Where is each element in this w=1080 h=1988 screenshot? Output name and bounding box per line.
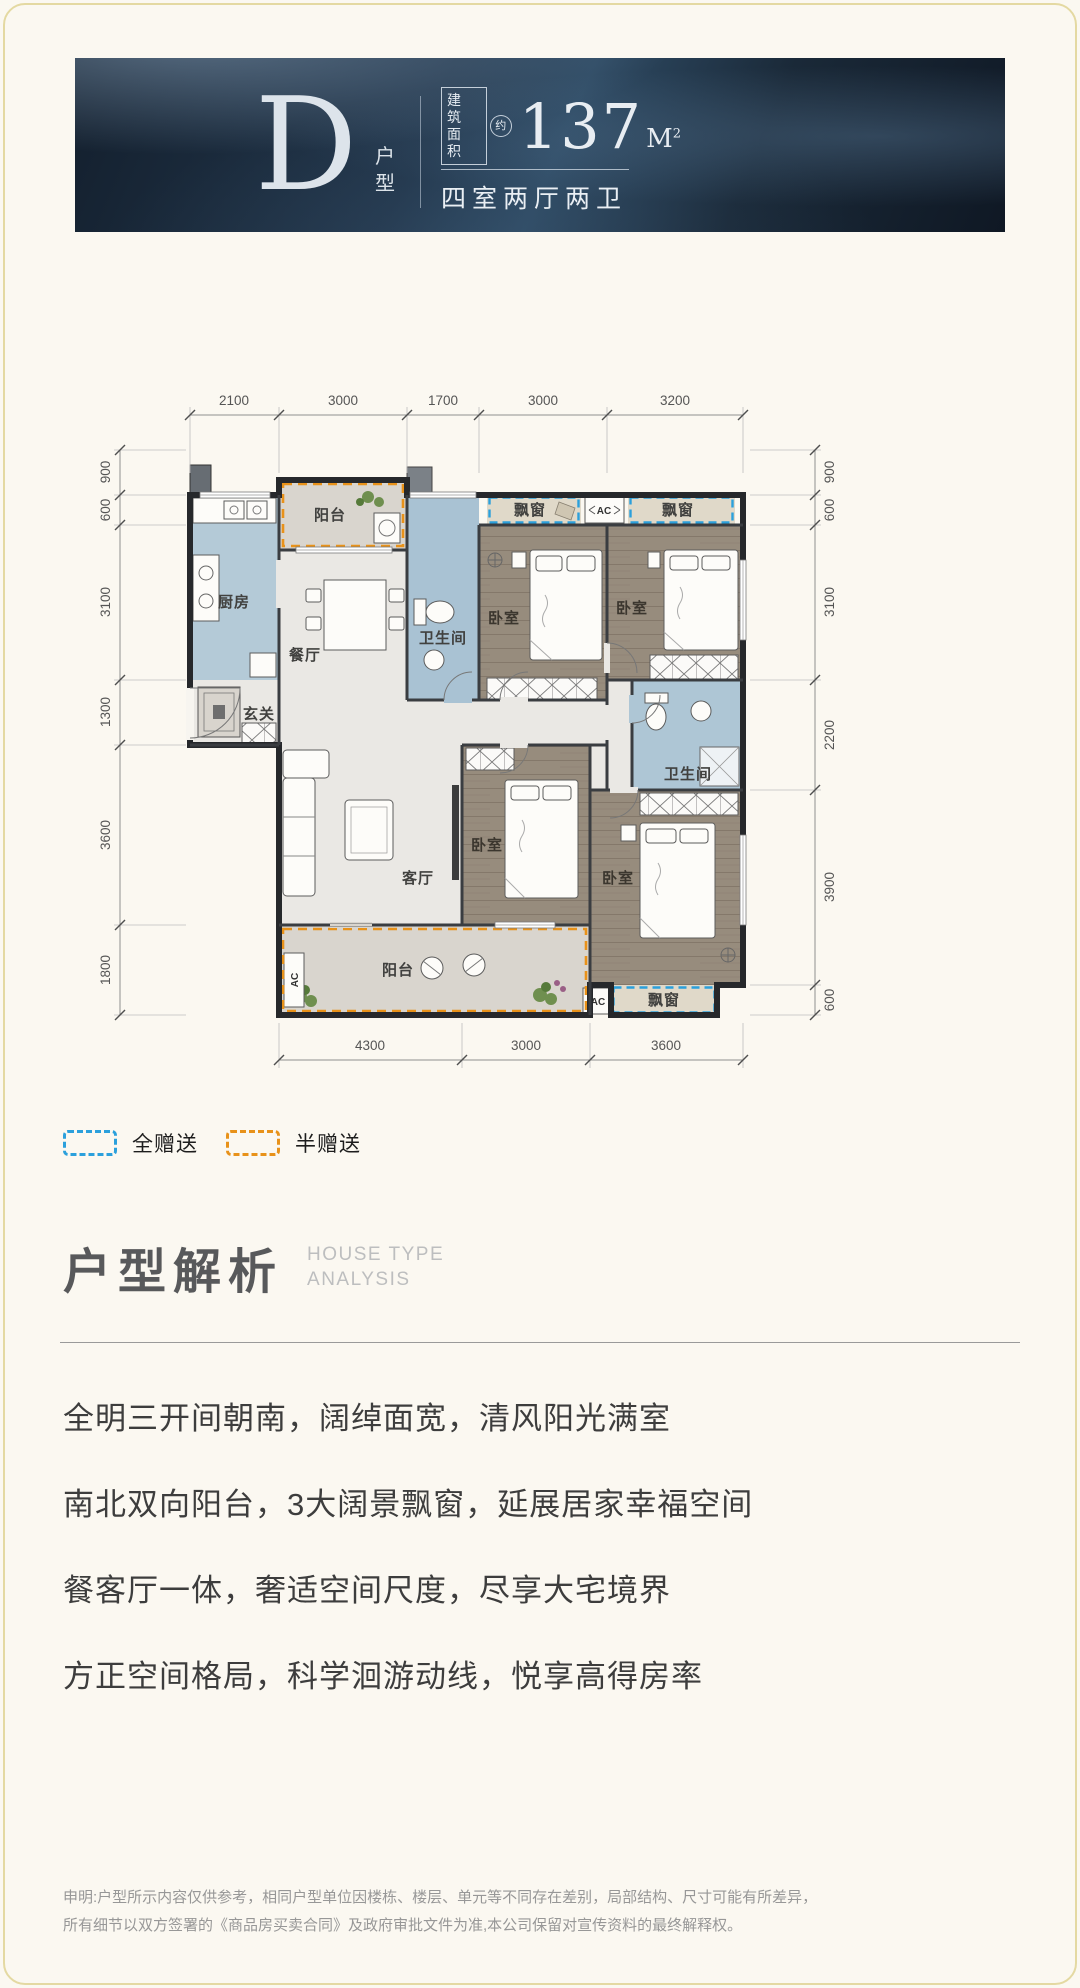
dimensions-top: 2100 3000 1700 3000 3200 <box>185 393 748 473</box>
balcony-top-label: 阳台 <box>314 506 346 524</box>
dim-label: 1700 <box>428 393 458 408</box>
header-banner: D 户型 建筑 面积 约 137 M2 四室两厅两卫 <box>75 58 1005 232</box>
legend-half-gift: 半赠送 <box>226 1128 361 1158</box>
toilet2-icon <box>645 693 668 703</box>
dim-label: 1800 <box>98 955 113 985</box>
entry-label: 玄关 <box>243 705 275 723</box>
dim-label: 600 <box>98 499 113 522</box>
poster-page: D 户型 建筑 面积 约 137 M2 四室两厅两卫 <box>0 0 1080 1988</box>
legend-full-gift: 全赠送 <box>63 1128 198 1158</box>
dim-label: 3000 <box>328 393 358 408</box>
dim-label: 3600 <box>651 1038 681 1053</box>
disclaimer-line: 所有细节以双方签署的《商品房买卖合同》及政府审批文件为准,本公司保留对宣传资料的… <box>63 1912 1023 1940</box>
dim-label: 900 <box>98 461 113 484</box>
stove-icon <box>193 555 219 621</box>
dim-label: 600 <box>822 499 837 522</box>
flue-block <box>190 465 211 495</box>
approx-circle: 约 <box>490 115 512 137</box>
dim-label: 3900 <box>822 872 837 902</box>
disclaimer-line: 申明:户型所示内容仅供参考，相同户型单位因楼栋、楼层、单元等不同存在差别，局部结… <box>63 1884 1023 1912</box>
dimensions-left: 900 600 3100 1300 3600 1800 <box>98 445 186 1020</box>
dim-label: 3100 <box>98 587 113 617</box>
closet-hall-floor <box>607 680 632 790</box>
unit-type-label: 户型 <box>375 144 399 198</box>
dim-label: 2100 <box>219 393 249 408</box>
dim-label: 3100 <box>822 587 837 617</box>
area-value: 137 <box>519 90 643 163</box>
disclaimer: 申明:户型所示内容仅供参考，相同户型单位因楼栋、楼层、单元等不同存在差别，局部结… <box>63 1884 1023 1940</box>
fridge-icon <box>250 653 276 677</box>
wardrobe-icon <box>487 678 597 700</box>
full-gift-swatch <box>63 1130 117 1156</box>
living-label: 客厅 <box>401 869 434 887</box>
dim-label: 4300 <box>355 1038 385 1053</box>
selling-point: 方正空间格局，科学洄游动线，悦享高得房率 <box>63 1630 1023 1716</box>
floor-plan: AC AC AC <box>0 355 1080 1115</box>
selling-point: 南北双向阳台，3大阔景飘窗，延展居家幸福空间 <box>63 1458 1023 1544</box>
area-group: 建筑 面积 约 137 M2 四室两厅两卫 <box>441 90 681 215</box>
dining-table-icon <box>324 580 386 650</box>
dim-label: 3000 <box>528 393 558 408</box>
selling-point: 全明三开间朝南，阔绰面宽，清风阳光满室 <box>63 1372 1023 1458</box>
bedroom3-label: 卧室 <box>471 836 503 854</box>
shoe-cabinet-icon <box>242 723 276 743</box>
dimensions-bottom: 4300 3000 3600 <box>274 1023 748 1068</box>
analysis-heading: 户型解析 HOUSE TYPE ANALYSIS <box>63 1232 444 1302</box>
selling-points: 全明三开间朝南，阔绰面宽，清风阳光满室 南北双向阳台，3大阔景飘窗，延展居家幸福… <box>63 1372 1023 1716</box>
chair-icon <box>306 589 321 602</box>
ac-label: AC <box>597 506 611 517</box>
selling-point: 餐客厅一体，奢适空间尺度，尽享大宅境界 <box>63 1544 1023 1630</box>
kitchen-label: 厨房 <box>218 593 250 611</box>
header-divider <box>420 96 421 208</box>
coffee-table-icon <box>345 800 393 860</box>
area-prefix-box: 建筑 面积 <box>441 87 487 165</box>
flue-block-2 <box>407 467 432 495</box>
dimensions-right: 900 600 3100 2200 3900 600 <box>750 445 837 1020</box>
sink-icon <box>224 501 244 519</box>
dim-label: 2200 <box>822 720 837 750</box>
dim-label: 600 <box>822 989 837 1012</box>
dining-label: 餐厅 <box>289 646 321 664</box>
section-divider <box>60 1342 1020 1343</box>
bay-window-label: 飘窗 <box>662 501 694 519</box>
bathroom2-label: 卫生间 <box>664 765 712 783</box>
hall-floor <box>407 700 607 745</box>
balcony-bottom-label: 阳台 <box>382 961 414 979</box>
basin2-icon <box>691 701 711 721</box>
dim-label: 3200 <box>660 393 690 408</box>
laundry-sink-icon <box>374 513 400 543</box>
dim-label: 3600 <box>98 820 113 850</box>
dim-label: 3000 <box>511 1038 541 1053</box>
tv-icon <box>452 785 459 880</box>
toilet-icon <box>414 599 426 625</box>
room-count-text: 四室两厅两卫 <box>441 179 681 215</box>
bedroom2-label: 卧室 <box>616 599 648 617</box>
area-underline <box>441 169 629 170</box>
unit-type-letter: D <box>227 60 387 232</box>
gift-legend: 全赠送 半赠送 <box>63 1128 361 1158</box>
bathroom1-label: 卫生间 <box>419 629 467 647</box>
dim-label: 1300 <box>98 697 113 727</box>
bed-icon <box>505 780 578 898</box>
basin-icon <box>424 650 444 670</box>
dim-label: 900 <box>822 461 837 484</box>
section-subtitle: HOUSE TYPE ANALYSIS <box>307 1242 444 1292</box>
bedroom1-label: 卧室 <box>488 609 520 627</box>
bay-window-label: 飘窗 <box>648 991 680 1009</box>
half-gift-swatch <box>226 1130 280 1156</box>
bay-window-label: 飘窗 <box>514 501 546 519</box>
bedroom4-label: 卧室 <box>602 869 634 887</box>
area-unit: M2 <box>646 124 681 154</box>
svg-text:AC: AC <box>290 973 301 987</box>
section-title: 户型解析 <box>63 1232 283 1302</box>
